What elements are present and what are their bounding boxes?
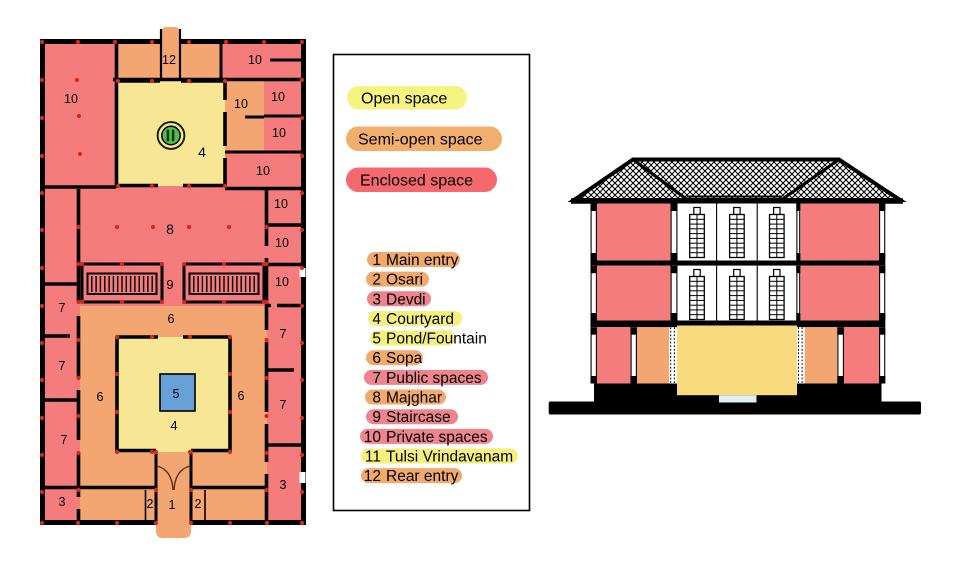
svg-text:3: 3 xyxy=(372,291,381,308)
svg-text:Semi-open space: Semi-open space xyxy=(358,132,483,149)
svg-text:2: 2 xyxy=(195,497,202,511)
svg-text:Private spaces: Private spaces xyxy=(386,429,488,446)
svg-text:Main entry: Main entry xyxy=(386,252,459,269)
svg-text:4: 4 xyxy=(198,144,206,160)
svg-text:10: 10 xyxy=(274,197,288,211)
svg-text:10: 10 xyxy=(271,90,285,104)
svg-text:2: 2 xyxy=(372,272,381,289)
svg-text:6: 6 xyxy=(372,350,381,367)
svg-text:1: 1 xyxy=(169,498,176,512)
svg-text:Rear entry: Rear entry xyxy=(386,468,459,485)
svg-text:4: 4 xyxy=(170,418,177,433)
svg-text:Enclosed space: Enclosed space xyxy=(360,173,473,190)
svg-text:Courtyard: Courtyard xyxy=(386,311,454,328)
svg-text:Osari: Osari xyxy=(386,272,423,289)
svg-text:3: 3 xyxy=(59,495,66,509)
svg-text:7: 7 xyxy=(372,370,381,387)
svg-text:11: 11 xyxy=(365,449,381,466)
svg-text:Sopa: Sopa xyxy=(386,350,423,367)
svg-text:Majghar: Majghar xyxy=(386,390,442,407)
svg-text:Devdi: Devdi xyxy=(386,291,426,308)
svg-text:7: 7 xyxy=(280,398,287,412)
svg-text:7: 7 xyxy=(59,359,66,373)
svg-text:10: 10 xyxy=(275,236,289,250)
svg-text:12: 12 xyxy=(364,468,381,485)
svg-text:Pond/Fountain: Pond/Fountain xyxy=(386,331,487,348)
svg-text:10: 10 xyxy=(248,53,262,67)
svg-text:12: 12 xyxy=(162,53,176,67)
svg-text:Open space: Open space xyxy=(361,91,447,108)
svg-text:8: 8 xyxy=(372,390,381,407)
svg-text:9: 9 xyxy=(166,277,173,292)
svg-text:1: 1 xyxy=(372,252,381,269)
svg-text:4: 4 xyxy=(372,311,381,328)
svg-text:10: 10 xyxy=(272,126,286,140)
svg-text:7: 7 xyxy=(59,301,66,315)
svg-text:7: 7 xyxy=(61,433,68,447)
svg-text:2: 2 xyxy=(147,497,154,511)
svg-text:5: 5 xyxy=(173,387,180,401)
svg-text:10: 10 xyxy=(256,164,270,178)
svg-text:9: 9 xyxy=(372,409,381,426)
svg-text:6: 6 xyxy=(168,312,175,326)
svg-text:5: 5 xyxy=(372,331,381,348)
svg-text:6: 6 xyxy=(238,389,245,403)
svg-text:10: 10 xyxy=(364,429,382,446)
svg-text:8: 8 xyxy=(166,221,174,237)
svg-text:Public spaces: Public spaces xyxy=(386,370,482,387)
svg-text:7: 7 xyxy=(280,327,287,341)
svg-text:Tulsi Vrindavanam: Tulsi Vrindavanam xyxy=(386,449,513,466)
svg-text:10: 10 xyxy=(234,97,248,111)
svg-text:6: 6 xyxy=(97,390,104,404)
svg-text:3: 3 xyxy=(280,478,287,492)
svg-text:Staircase: Staircase xyxy=(386,409,451,426)
svg-text:10: 10 xyxy=(64,92,78,106)
svg-text:10: 10 xyxy=(275,275,289,289)
